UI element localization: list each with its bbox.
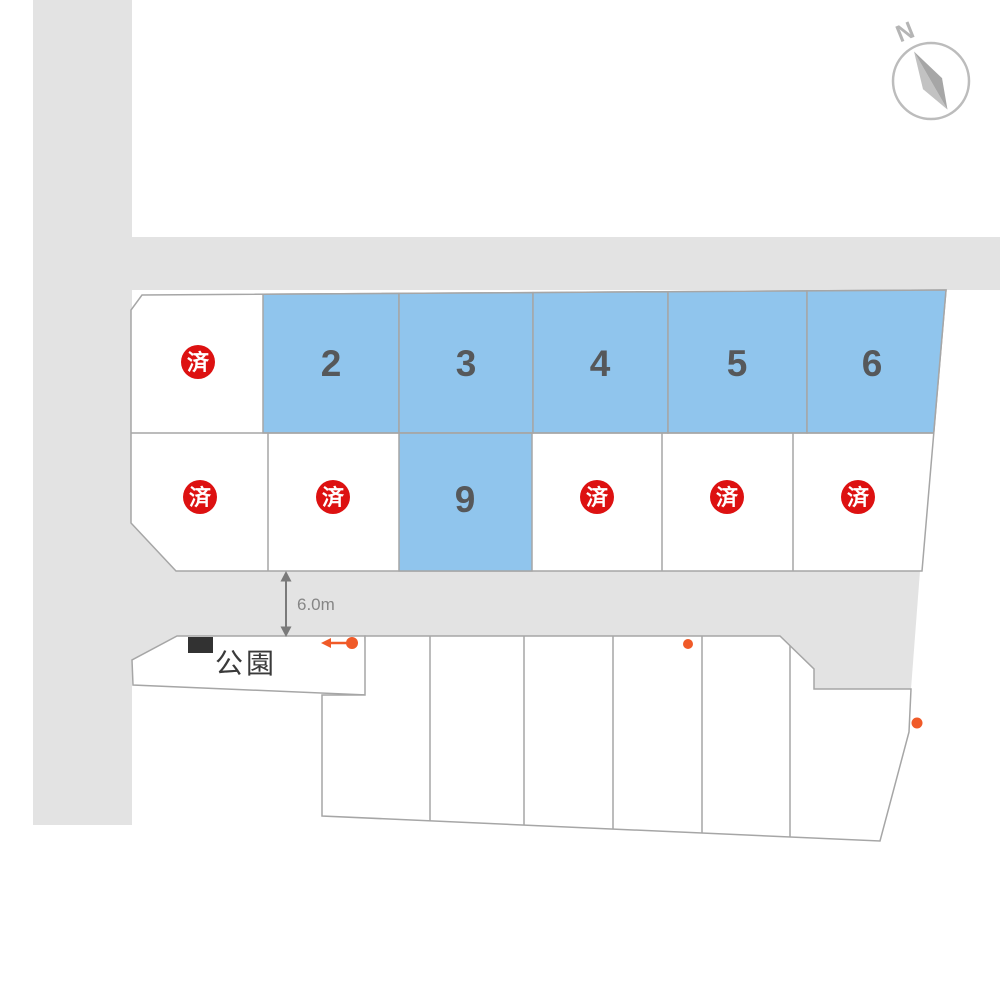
sold-badge-text: 済 <box>847 485 870 511</box>
compass: N <box>892 17 969 119</box>
sold-badge-r2c2: 済 <box>316 480 350 514</box>
lot-3-number: 3 <box>456 343 477 384</box>
north-label: N <box>892 17 918 49</box>
sold-badge-r2c4: 済 <box>580 480 614 514</box>
sold-badge-text: 済 <box>716 485 739 511</box>
sold-badge-text: 済 <box>189 485 212 511</box>
lot-2-number: 2 <box>321 343 342 384</box>
main-lot-block: 2 3 4 5 6 9 済 済 済 済 <box>131 290 946 571</box>
sold-badge-text: 済 <box>187 350 210 376</box>
park-area: 公園 <box>132 636 367 695</box>
park-structure-marker <box>188 637 213 653</box>
park-label: 公園 <box>215 647 277 680</box>
lot-9-number: 9 <box>455 479 476 520</box>
lot-6-number: 6 <box>862 343 883 384</box>
marker-dot-icon <box>912 718 923 729</box>
sold-badge-r2c6: 済 <box>841 480 875 514</box>
sold-badge-r1c1: 済 <box>181 345 215 379</box>
compass-needle-icon <box>904 46 957 115</box>
subdivision-lot-map: 2 3 4 5 6 9 済 済 済 済 <box>0 0 1000 1000</box>
sold-badge-r2c5: 済 <box>710 480 744 514</box>
lot-4-number: 4 <box>590 343 611 384</box>
sold-badge-text: 済 <box>322 485 345 511</box>
road-width-label: 6.0m <box>297 595 335 614</box>
lot-map-canvas: 2 3 4 5 6 9 済 済 済 済 <box>0 0 1000 1000</box>
marker-dot-icon <box>683 639 693 649</box>
sold-badge-r2c1: 済 <box>183 480 217 514</box>
left-road <box>33 0 132 825</box>
sold-badge-text: 済 <box>586 485 609 511</box>
lot-5-number: 5 <box>727 343 748 384</box>
top-road <box>132 237 1000 290</box>
